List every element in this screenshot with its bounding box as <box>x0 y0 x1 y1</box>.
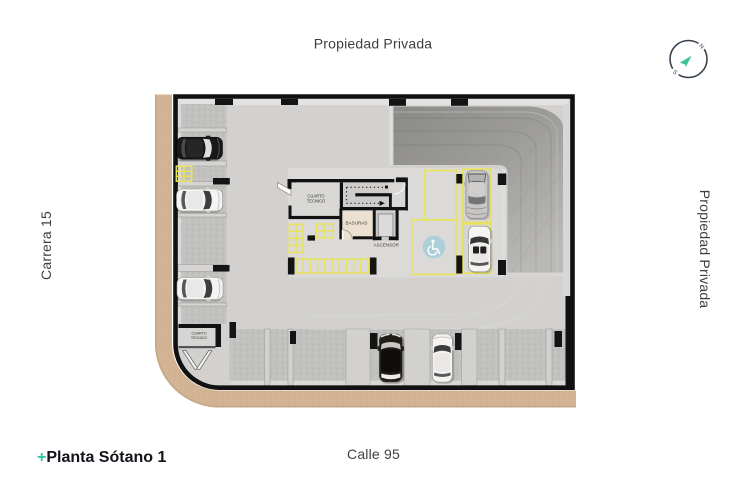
svg-text:BASURAS: BASURAS <box>346 221 368 226</box>
svg-text:Calle 95: Calle 95 <box>347 446 400 462</box>
svg-text:Carrera 15: Carrera 15 <box>38 211 54 280</box>
svg-text:ASCENSOR: ASCENSOR <box>374 243 400 248</box>
svg-text:+Planta Sótano 1: +Planta Sótano 1 <box>37 449 166 466</box>
svg-text:TECNICO: TECNICO <box>191 336 207 340</box>
svg-text:CUARTO: CUARTO <box>191 332 206 336</box>
svg-text:Propiedad Privada: Propiedad Privada <box>314 36 433 52</box>
svg-text:Propiedad Privada: Propiedad Privada <box>697 190 713 309</box>
svg-text:TECNICO: TECNICO <box>307 199 325 204</box>
